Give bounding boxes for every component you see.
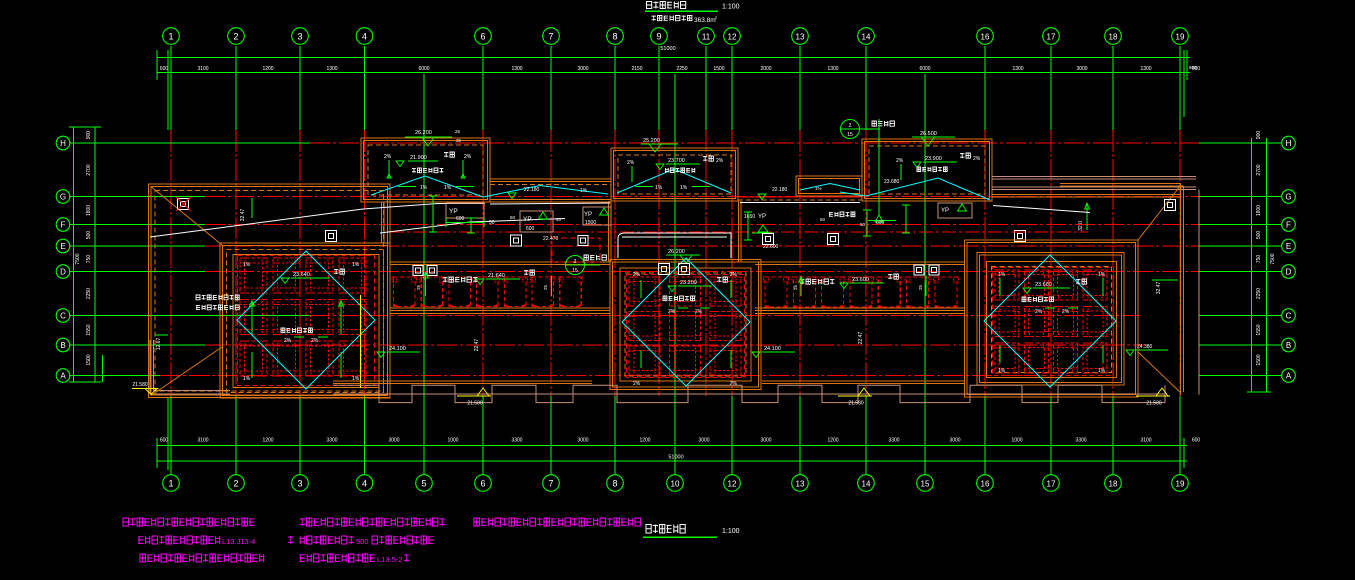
svg-text:F: F	[61, 221, 66, 230]
svg-text:2000: 2000	[760, 66, 771, 72]
svg-text:24.380: 24.380	[1137, 344, 1153, 350]
svg-text:23.680: 23.680	[1035, 282, 1052, 288]
svg-text:L13.5-2: L13.5-2	[377, 555, 402, 564]
svg-text:2700: 2700	[86, 164, 92, 175]
svg-text:750: 750	[86, 255, 92, 264]
svg-text:23.900: 23.900	[925, 156, 942, 162]
svg-text:2%: 2%	[464, 154, 472, 160]
svg-text:2%: 2%	[973, 156, 981, 162]
svg-text:D: D	[60, 268, 66, 277]
svg-text:A: A	[60, 372, 66, 381]
svg-text:50: 50	[489, 220, 495, 226]
svg-text:600: 600	[160, 66, 169, 72]
svg-text:21.580: 21.580	[467, 401, 483, 407]
svg-text:15: 15	[572, 268, 578, 274]
svg-text:1550: 1550	[86, 324, 92, 335]
svg-text:4: 4	[362, 32, 367, 42]
svg-text:2150: 2150	[631, 66, 642, 72]
svg-text:11: 11	[702, 33, 711, 42]
svg-text:600: 600	[1192, 438, 1201, 444]
svg-text:1%: 1%	[1098, 368, 1106, 374]
svg-text:YP: YP	[758, 214, 766, 220]
svg-text:40: 40	[556, 217, 562, 222]
svg-text:2%: 2%	[627, 160, 635, 166]
svg-text:500: 500	[356, 537, 369, 546]
svg-text:E: E	[60, 242, 65, 251]
svg-text:2250: 2250	[86, 288, 92, 299]
svg-text:3: 3	[297, 32, 302, 42]
svg-text:25.200: 25.200	[643, 138, 660, 144]
svg-text:4: 4	[362, 479, 367, 489]
svg-text:1%: 1%	[444, 185, 452, 191]
svg-text:21.900: 21.900	[410, 155, 427, 161]
svg-text:B: B	[1286, 341, 1291, 350]
svg-text:3100: 3100	[197, 438, 208, 444]
svg-text:1500: 1500	[713, 66, 724, 72]
svg-text:750: 750	[1256, 255, 1262, 264]
svg-text:2700: 2700	[1256, 164, 1262, 175]
svg-text:E: E	[1286, 242, 1291, 251]
svg-text:1%: 1%	[420, 185, 428, 191]
svg-text:500: 500	[1256, 231, 1262, 240]
svg-text:1200: 1200	[827, 438, 838, 444]
svg-text:1: 1	[168, 32, 173, 42]
svg-text:32.47: 32.47	[1156, 282, 1162, 295]
svg-text:1: 1	[168, 479, 173, 489]
svg-text:10: 10	[671, 480, 680, 489]
svg-text:1300: 1300	[511, 66, 522, 72]
svg-text:23.200: 23.200	[680, 280, 697, 286]
svg-text:3: 3	[297, 479, 302, 489]
svg-text:50: 50	[820, 217, 826, 222]
svg-text:16: 16	[981, 33, 990, 42]
svg-text:G: G	[1285, 193, 1291, 202]
svg-text:25: 25	[416, 284, 421, 290]
svg-text:8: 8	[612, 32, 617, 42]
svg-text:12: 12	[728, 480, 737, 489]
svg-text:25: 25	[455, 129, 461, 134]
svg-text:3000: 3000	[577, 66, 588, 72]
svg-text:24.100: 24.100	[764, 346, 781, 352]
svg-text:23.640: 23.640	[293, 272, 310, 278]
svg-text:2%: 2%	[668, 309, 676, 315]
svg-text:50: 50	[860, 222, 866, 227]
svg-text:G: G	[60, 193, 66, 202]
svg-text:1200: 1200	[639, 438, 650, 444]
svg-text:A: A	[1286, 372, 1292, 381]
svg-text:19: 19	[1176, 480, 1185, 489]
svg-text:14: 14	[862, 480, 871, 489]
svg-text:YP: YP	[941, 208, 949, 214]
svg-text:2250: 2250	[676, 66, 687, 72]
svg-text:32.0: 32.0	[1078, 221, 1084, 231]
svg-text:1%: 1%	[998, 368, 1006, 374]
svg-text:12: 12	[728, 33, 737, 42]
svg-text:1%: 1%	[998, 272, 1006, 278]
svg-text:600: 600	[160, 438, 169, 444]
svg-text:12.67: 12.67	[156, 338, 162, 351]
svg-text:18: 18	[1109, 33, 1118, 42]
svg-text:1300: 1300	[827, 66, 838, 72]
svg-text:3000: 3000	[388, 438, 399, 444]
svg-text:51000: 51000	[668, 455, 683, 461]
svg-text:1500: 1500	[585, 220, 596, 226]
svg-text:26.200: 26.200	[668, 249, 685, 255]
svg-text:21.580: 21.580	[1146, 401, 1162, 407]
svg-text:1200: 1200	[262, 66, 273, 72]
svg-text:2%: 2%	[633, 272, 641, 278]
svg-text:1%: 1%	[655, 185, 663, 191]
svg-text:19: 19	[1176, 33, 1185, 42]
svg-text:3000: 3000	[577, 438, 588, 444]
svg-text:2%: 2%	[695, 309, 703, 315]
svg-text:2250: 2250	[1256, 288, 1262, 299]
svg-text:600: 600	[526, 226, 535, 232]
svg-text:3100: 3100	[197, 66, 208, 72]
svg-text:3000: 3000	[949, 438, 960, 444]
svg-text:7: 7	[548, 479, 553, 489]
svg-text:D: D	[1286, 268, 1292, 277]
svg-text:2: 2	[233, 479, 238, 489]
svg-text:1800: 1800	[86, 205, 92, 216]
svg-text:2%: 2%	[384, 154, 392, 160]
svg-text:363.8m: 363.8m	[694, 17, 716, 24]
svg-text:21.640: 21.640	[488, 273, 505, 279]
svg-text:YP: YP	[584, 212, 592, 218]
svg-text:26.200: 26.200	[415, 130, 432, 136]
svg-text:17: 17	[1047, 480, 1056, 489]
svg-text:22.470: 22.470	[543, 236, 559, 242]
svg-text:25: 25	[543, 284, 548, 290]
svg-text:1500: 1500	[1256, 354, 1262, 365]
svg-text:2%: 2%	[716, 158, 724, 164]
svg-text:900: 900	[1256, 131, 1262, 140]
svg-text:3000: 3000	[760, 438, 771, 444]
svg-text:3100: 3100	[1140, 438, 1151, 444]
svg-text:15: 15	[847, 132, 853, 138]
svg-text:1:100: 1:100	[722, 528, 740, 535]
svg-text:6: 6	[480, 32, 485, 42]
svg-text:51000: 51000	[660, 46, 675, 52]
svg-text:1300: 1300	[1012, 66, 1023, 72]
svg-text:26.500: 26.500	[920, 131, 937, 137]
svg-text:1%: 1%	[815, 186, 822, 191]
svg-text:C: C	[60, 312, 66, 321]
svg-text:1200: 1200	[262, 438, 273, 444]
svg-text:21.580: 21.580	[132, 382, 148, 388]
svg-text:2%: 2%	[730, 381, 738, 387]
svg-text:600: 600	[876, 220, 885, 226]
svg-text:22.600: 22.600	[763, 244, 779, 250]
svg-text:6000: 6000	[418, 66, 429, 72]
svg-text:900: 900	[86, 131, 92, 140]
svg-text:35: 35	[456, 138, 462, 143]
svg-text:13: 13	[796, 480, 805, 489]
svg-text:8: 8	[612, 479, 617, 489]
svg-text:7: 7	[548, 32, 553, 42]
svg-text:YP: YP	[523, 216, 532, 223]
svg-text:7500: 7500	[75, 253, 81, 264]
svg-text:1000: 1000	[447, 438, 458, 444]
svg-text:18: 18	[1109, 480, 1118, 489]
svg-text:25: 25	[793, 284, 798, 290]
svg-text:H: H	[1286, 139, 1292, 148]
svg-text:L13.J13-4: L13.J13-4	[222, 537, 255, 546]
svg-text:3300: 3300	[888, 438, 899, 444]
svg-text:1550: 1550	[1256, 324, 1262, 335]
svg-text:1800: 1800	[1256, 205, 1262, 216]
svg-text:23.600: 23.600	[852, 277, 869, 283]
svg-text:1%: 1%	[580, 188, 588, 194]
svg-text:1300: 1300	[326, 66, 337, 72]
svg-text:500: 500	[86, 231, 92, 240]
svg-text:13: 13	[796, 33, 805, 42]
svg-text:1%: 1%	[1098, 272, 1106, 278]
svg-text:2: 2	[849, 123, 852, 129]
svg-text:B: B	[60, 341, 65, 350]
svg-text:1%: 1%	[243, 376, 251, 382]
svg-text:22.47: 22.47	[858, 332, 864, 345]
svg-text:2%: 2%	[896, 158, 904, 164]
svg-text:23.680: 23.680	[884, 179, 900, 185]
svg-text:5: 5	[421, 479, 426, 489]
svg-text:C: C	[1286, 312, 1292, 321]
svg-text:2%: 2%	[633, 381, 641, 387]
svg-text:21.580: 21.580	[848, 401, 864, 407]
svg-text:25: 25	[918, 284, 923, 290]
svg-text:3300: 3300	[1075, 438, 1086, 444]
svg-text:15: 15	[921, 480, 930, 489]
svg-text:2%: 2%	[311, 338, 319, 344]
svg-text:1%: 1%	[243, 262, 251, 268]
svg-text:3000: 3000	[698, 438, 709, 444]
svg-text:2%: 2%	[730, 272, 738, 278]
svg-text:23.700: 23.700	[668, 158, 685, 164]
svg-text:3000: 3000	[1076, 66, 1087, 72]
svg-text:600: 600	[1192, 66, 1201, 72]
svg-text:24.100: 24.100	[389, 346, 406, 352]
svg-text:600: 600	[456, 216, 465, 222]
svg-text:1%: 1%	[680, 185, 688, 191]
svg-text:22.47: 22.47	[474, 339, 480, 352]
svg-text:2%: 2%	[284, 338, 292, 344]
svg-text:YP: YP	[449, 208, 458, 215]
svg-text:17: 17	[1047, 33, 1056, 42]
svg-text:22.180: 22.180	[772, 187, 788, 193]
svg-text:2: 2	[233, 32, 238, 42]
svg-text:32.47: 32.47	[240, 209, 246, 222]
svg-text:1%: 1%	[352, 262, 360, 268]
svg-text:F: F	[1286, 221, 1291, 230]
svg-text:14: 14	[862, 33, 871, 42]
svg-text:1:100: 1:100	[722, 4, 740, 11]
svg-text:6: 6	[480, 479, 485, 489]
svg-text:2%: 2%	[1035, 309, 1043, 315]
svg-text:1500: 1500	[86, 354, 92, 365]
svg-text:22.180: 22.180	[524, 187, 540, 193]
svg-text:H: H	[60, 139, 66, 148]
svg-text:16: 16	[981, 480, 990, 489]
svg-text:1300: 1300	[1140, 66, 1151, 72]
svg-text:3300: 3300	[326, 438, 337, 444]
svg-text:1000: 1000	[1011, 438, 1022, 444]
svg-text:7500: 7500	[1270, 253, 1276, 264]
svg-text:1650: 1650	[744, 214, 755, 220]
svg-text:2%: 2%	[1062, 309, 1070, 315]
svg-text:50: 50	[510, 215, 516, 220]
svg-text:6000: 6000	[919, 66, 930, 72]
svg-text:9: 9	[656, 32, 661, 42]
svg-text:3300: 3300	[511, 438, 522, 444]
